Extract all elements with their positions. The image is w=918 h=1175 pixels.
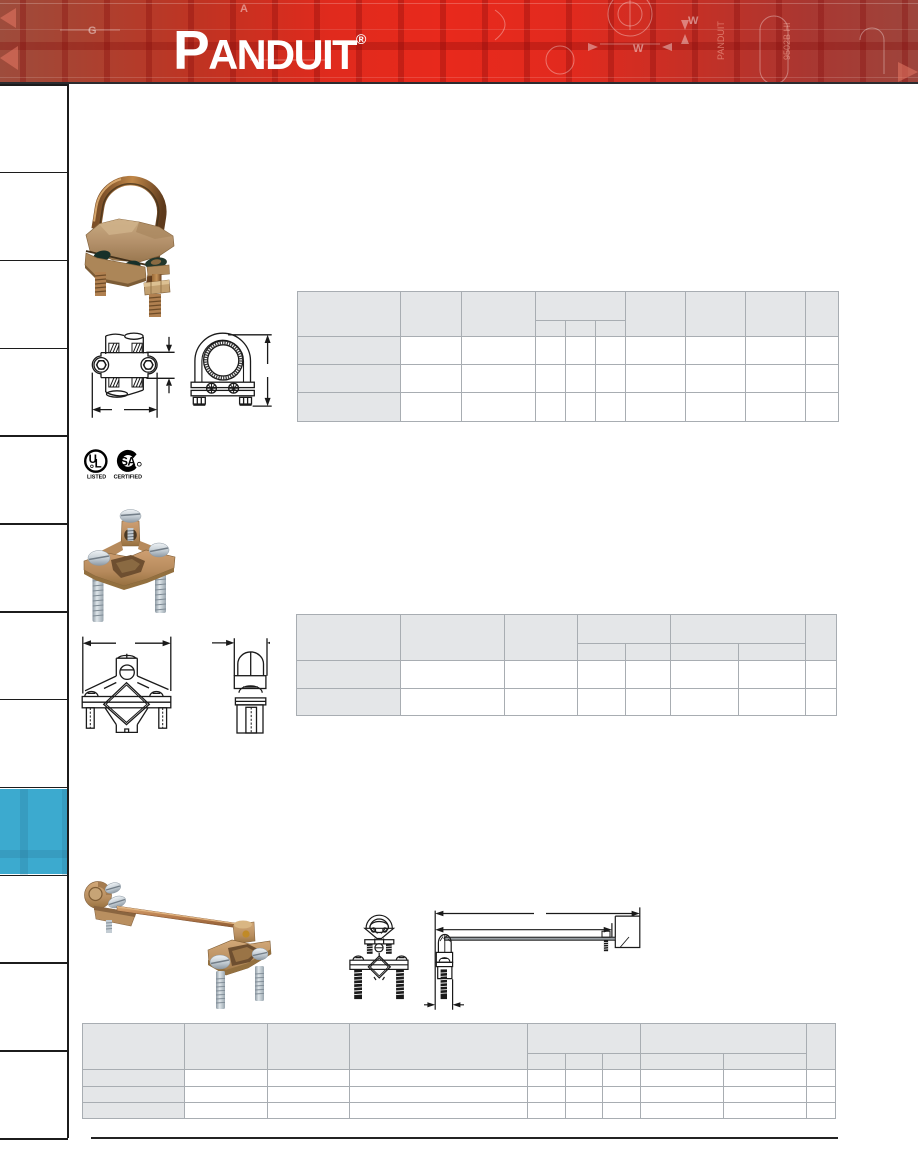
svg-text:PANDUIT: PANDUIT	[716, 21, 726, 60]
svg-text:G: G	[88, 25, 97, 37]
svg-text:CERTIFIED: CERTIFIED	[114, 475, 143, 480]
svg-text:W: W	[688, 15, 699, 27]
svg-text:LISTED: LISTED	[87, 475, 106, 480]
svg-text:L: L	[95, 459, 102, 471]
svg-text:W: W	[633, 43, 644, 55]
svg-text:SA: SA	[120, 456, 135, 468]
svg-text:9502B HI: 9502B HI	[782, 22, 792, 60]
